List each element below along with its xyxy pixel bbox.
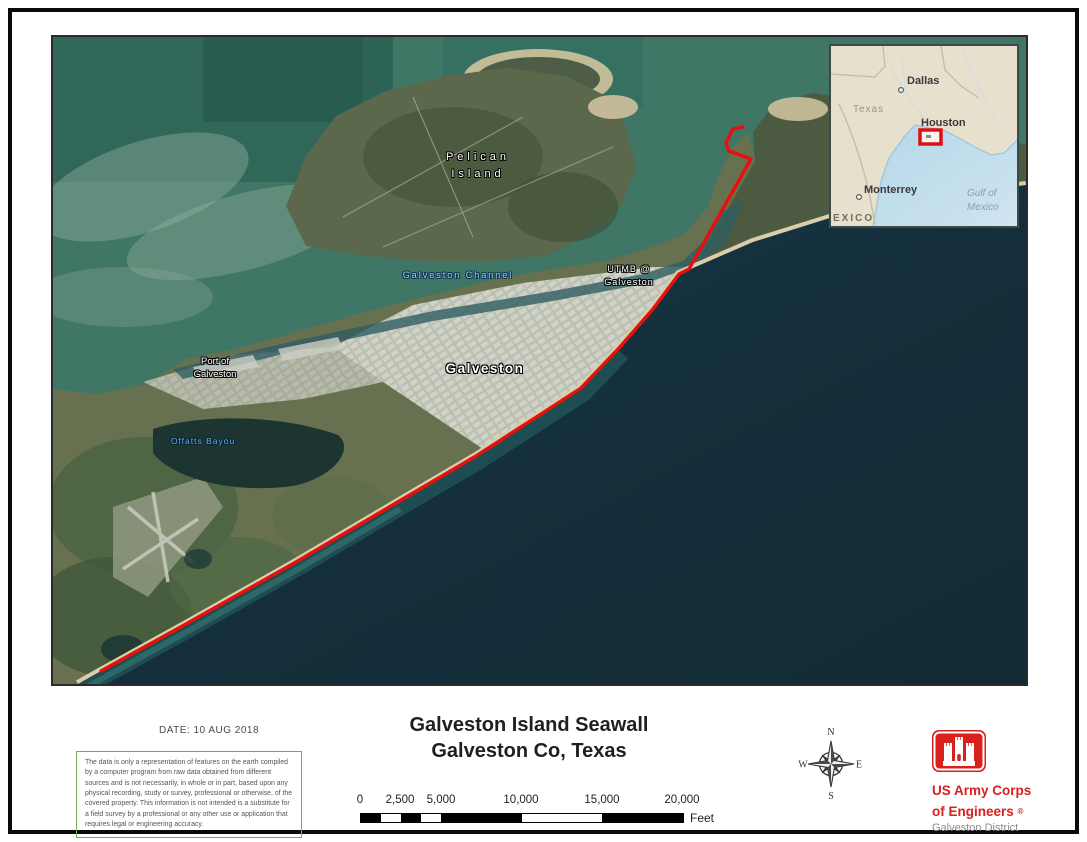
inset-label-gulf-line2: Mexico (967, 202, 999, 213)
disclaimer-box: The data is only a representation of fea… (76, 751, 302, 838)
logo-line2: of Engineers ® (932, 804, 1072, 819)
compass-rose-icon: N E S W (798, 725, 864, 806)
map-title-line2: Galveston Co, Texas (339, 738, 719, 764)
inset-label-houston: Houston (921, 117, 966, 129)
scale-label-10000: 10,000 (503, 794, 538, 806)
usace-logo: US Army Corps of Engineers ® Galveston D… (932, 730, 1072, 834)
map-title: Galveston Island Seawall Galveston Co, T… (339, 712, 719, 764)
inset-label-mexico: EXICO (833, 213, 874, 224)
inset-locator-map: Dallas Texas Houston Monterrey Gulf of M… (829, 44, 1019, 228)
scale-label-15000: 15,000 (584, 794, 619, 806)
scale-label-0: 0 (357, 794, 363, 806)
logo-district: Galveston District (932, 822, 1072, 834)
compass-n: N (827, 727, 834, 738)
compass-w: W (798, 760, 808, 771)
usace-castle-icon (932, 730, 986, 772)
map-title-line1: Galveston Island Seawall (339, 712, 719, 738)
compass-e: E (856, 760, 862, 771)
logo-line1: US Army Corps (932, 783, 1072, 798)
label-galveston: Galveston (446, 361, 525, 376)
inset-map-image: Dallas Texas Houston Monterrey Gulf of M… (831, 46, 1017, 226)
inset-label-dallas: Dallas (907, 75, 939, 87)
label-galveston-channel: Galveston Channel (403, 270, 514, 280)
dallas-dot (899, 88, 904, 93)
registered-mark: ® (1018, 807, 1024, 816)
scale-label-20000: 20,000 (664, 794, 699, 806)
inset-label-gulf-line1: Gulf of (967, 188, 998, 199)
compass-s: S (828, 791, 834, 801)
scale-label-2500: 2,500 (386, 794, 415, 806)
label-offatts-bayou: Offatts Bayou (171, 436, 235, 446)
page-border: Pelican Island Galveston Channel UTMB @ … (8, 8, 1079, 834)
map-date: DATE: 10 AUG 2018 (124, 725, 294, 736)
scale-bar: 0 2,500 5,000 10,000 15,000 20,000 Feet (360, 794, 710, 838)
monterrey-dot (857, 195, 862, 200)
label-port-of-galveston: Port of Galveston (194, 355, 237, 381)
inset-label-texas: Texas (853, 104, 884, 115)
scale-bar-graphic (360, 813, 684, 823)
inset-label-monterrey: Monterrey (864, 184, 918, 196)
scale-label-5000: 5,000 (427, 794, 456, 806)
scale-unit-label: Feet (690, 811, 714, 825)
label-pelican-island: Pelican Island (446, 149, 510, 183)
label-utmb-galveston: UTMB @ Galveston (604, 263, 654, 289)
